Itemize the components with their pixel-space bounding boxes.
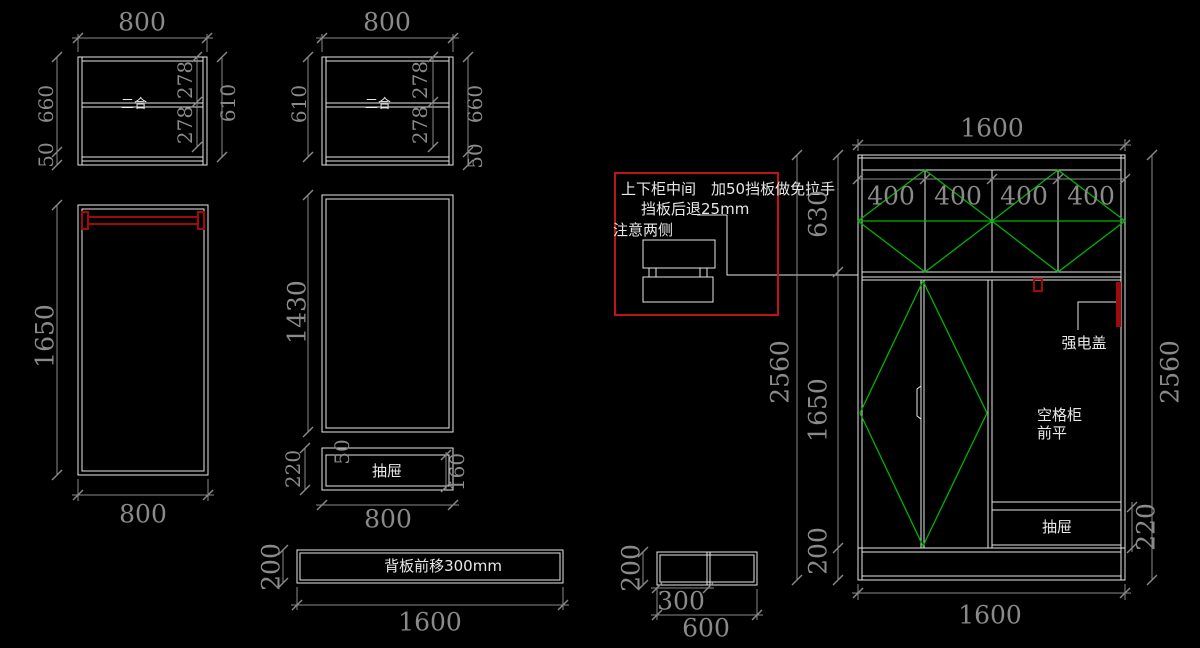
label-power-cover: 强电盖 <box>1061 334 1106 352</box>
dim-tall-b-height: 1430 <box>285 280 310 344</box>
label-main-drawer: 抽屉 <box>1042 518 1072 536</box>
dim-main-col-1: 400 <box>867 184 915 209</box>
dim-main-col-3: 400 <box>1000 184 1048 209</box>
dim-main-col-2: 400 <box>934 184 982 209</box>
dim-tall-b-width: 800 <box>364 507 412 532</box>
cad-wardrobe-drawing: 800 660 50 278 278 610 二合 800 610 278 27… <box>0 0 1200 648</box>
dim-main-drawer-height: 220 <box>1134 503 1159 551</box>
dim-upper-b-50: 50 <box>465 143 485 168</box>
dim-upper-a-width: 800 <box>118 10 166 35</box>
dim-upper-b-278-top: 278 <box>410 61 430 99</box>
dim-upper-a-610: 610 <box>218 84 238 122</box>
dim-main-total-right: 2560 <box>1158 340 1183 404</box>
dim-small-cab-height: 200 <box>619 544 644 592</box>
dim-small-cab-600: 600 <box>682 616 730 641</box>
dim-tall-a-width: 800 <box>119 502 167 527</box>
dim-tall-b-drawer-height: 220 <box>283 450 303 488</box>
dim-tall-b-drawer-gap: 50 <box>332 439 352 464</box>
dim-upper-a-278-top: 278 <box>175 61 195 99</box>
dim-back-panel-height: 200 <box>259 543 284 591</box>
dim-main-col-4: 400 <box>1067 184 1115 209</box>
note-line-3: 注意两侧 <box>613 221 673 239</box>
dim-upper-a-50: 50 <box>36 142 56 167</box>
label-tall-b-drawer: 抽屉 <box>372 462 402 480</box>
power-cover-mark <box>1116 282 1121 327</box>
dim-upper-b-660: 660 <box>465 85 485 123</box>
label-upper-a-erhe: 二合 <box>121 97 147 113</box>
dim-main-middle-height: 1650 <box>806 378 831 442</box>
dim-upper-b-width: 800 <box>363 10 411 35</box>
label-open-cabinet-1: 空格柜 <box>1037 406 1082 424</box>
note-line-2: 挡板后退25mm <box>641 200 749 218</box>
dim-upper-a-660: 660 <box>36 85 56 123</box>
dim-main-upper-height: 630 <box>806 190 831 238</box>
dim-main-width-top: 1600 <box>960 116 1024 141</box>
dim-upper-b-610: 610 <box>289 85 309 123</box>
label-upper-b-erhe: 二合 <box>365 97 391 113</box>
dim-main-base-height: 200 <box>806 527 831 575</box>
label-back-panel: 背板前移300mm <box>384 557 502 575</box>
dim-main-total-left: 2560 <box>768 340 793 404</box>
dim-tall-b-drawer-front: 160 <box>447 453 467 491</box>
label-open-cabinet-2: 前平 <box>1037 424 1067 442</box>
dim-back-panel-width: 1600 <box>398 610 462 635</box>
dim-small-cab-300: 300 <box>657 589 705 614</box>
dim-upper-b-278-bottom: 278 <box>410 106 430 144</box>
dim-tall-a-height: 1650 <box>33 304 58 368</box>
dim-main-width-bottom: 1600 <box>958 603 1022 628</box>
dim-upper-a-278-bottom: 278 <box>175 106 195 144</box>
